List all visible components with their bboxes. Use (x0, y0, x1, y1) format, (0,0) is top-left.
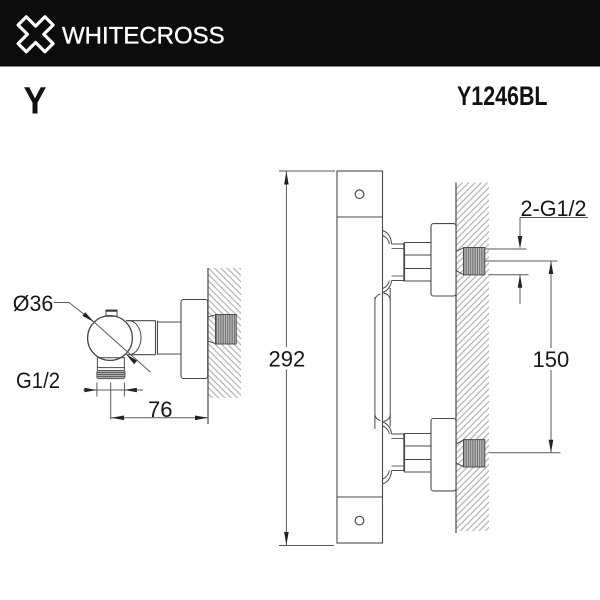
svg-text:WHITECROSS: WHITECROSS (62, 22, 225, 49)
svg-text:292: 292 (269, 347, 306, 372)
svg-text:76: 76 (148, 397, 172, 422)
svg-text:Y: Y (24, 81, 47, 123)
svg-text:G1/2: G1/2 (16, 368, 60, 393)
svg-text:Ø36: Ø36 (13, 291, 54, 316)
svg-text:2-G1/2: 2-G1/2 (521, 196, 587, 221)
svg-text:150: 150 (533, 347, 570, 372)
svg-text:Y1246BL: Y1246BL (457, 81, 548, 111)
